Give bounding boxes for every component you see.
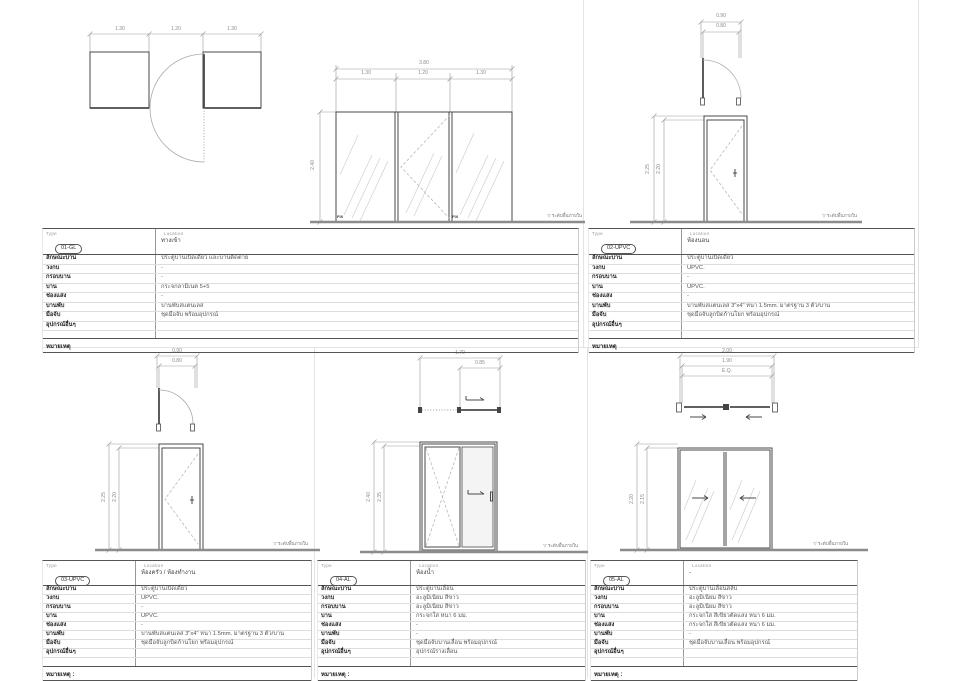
- remark-label: หมายเหตุ: [43, 343, 578, 353]
- location-value: ห้องน้ำ: [416, 568, 585, 576]
- row-value: อะลูมิเนียม สีขาว: [684, 595, 857, 603]
- type-badge: 04-AL: [330, 576, 357, 587]
- schedule-header: Type 05-AL Location -: [591, 561, 857, 586]
- remark-label: หมายเหตุ :: [318, 671, 585, 681]
- row-label: ลักษณะบาน: [318, 586, 411, 594]
- dim-label: 1.90: [721, 359, 733, 364]
- schedule-row: วงกบUPVC.: [43, 595, 311, 604]
- dim-label: 0.80: [171, 359, 183, 364]
- schedule-row: ลักษณะบานประตูบานเปิดเดี่ยว และบานติดตาย: [43, 255, 578, 265]
- glass-wall-elevation: [336, 112, 512, 222]
- schedule-row: อุปกรณ์อื่นๆอุปกรณ์รางเลื่อน: [318, 649, 585, 658]
- schedule-row: มือจับชุดมือจับบานเลื่อน พร้อมอุปกรณ์: [318, 640, 585, 649]
- schedule-row: ช่องแสง-: [589, 293, 914, 303]
- row-value: บานพับสแตนเลส: [156, 303, 578, 312]
- row-label: ช่องแสง: [43, 293, 156, 302]
- type-column-header: Type: [43, 561, 135, 568]
- row-label: มือจับ: [43, 312, 156, 321]
- location-column-header: Location: [689, 561, 857, 568]
- schedule-row: อุปกรณ์อื่นๆ: [589, 322, 914, 332]
- row-label: ลักษณะบาน: [43, 586, 136, 594]
- remark-label: หมายเหตุ :: [591, 671, 857, 681]
- row-label: ช่องแสง: [318, 622, 411, 630]
- level-marker-icon: ▽: [547, 213, 550, 218]
- row-value: กระจกใส หนา 6 มม.: [411, 613, 585, 621]
- type-badge: 01-GL: [55, 244, 82, 255]
- dim-label: 1.20: [170, 27, 182, 32]
- door-swing-arc: [159, 390, 193, 424]
- door-schedule-table-02-upvc: Type 02-UPVC Location ห้องนอน ลักษณะบานป…: [588, 228, 915, 353]
- dim-label: 0.80: [715, 24, 727, 29]
- door-schedule-table-03-upvc: Type 03-UPVC Location ห้องครัว / ห้องทำง…: [42, 560, 312, 681]
- floor-level-label: ▽ ระดับพื้นภายใน: [244, 542, 308, 547]
- schedule-row: บานพับบานพับสแตนเลส 3"x4" หนา 1.5mm. มาต…: [589, 303, 914, 313]
- door-schedule-table-05-al: Type 05-AL Location - ลักษณะบานประตูบานเ…: [590, 560, 858, 681]
- row-label: ลักษณะบาน: [589, 255, 682, 264]
- location-value: ห้องนอน: [687, 236, 914, 244]
- row-value: -: [156, 274, 578, 283]
- slide-direction-arrow: [466, 396, 484, 400]
- floor-level-label: ▽ ระดับพื้นภายใน: [793, 214, 857, 219]
- remark-label: หมายเหตุ :: [43, 671, 311, 681]
- fixed-panel: [425, 447, 460, 547]
- floor-level-label: ▽ ระดับพื้นภายใน: [518, 214, 582, 219]
- schedule-row: อุปกรณ์อื่นๆ: [43, 322, 578, 332]
- level-marker-icon: ▽: [543, 543, 546, 548]
- elevation-drawing-05-al: [620, 430, 868, 558]
- floor-level-text: ระดับพื้นภายใน: [552, 213, 582, 218]
- slide-direction-arrows: [690, 415, 762, 420]
- schedule-row: ช่องแสง-: [43, 293, 578, 303]
- floor-level-text: ระดับพื้นภายใน: [278, 541, 308, 546]
- row-label: วงกบ: [589, 265, 682, 274]
- floor-level-text: ระดับพื้นภายใน: [818, 541, 848, 546]
- schedule-row-blank: [589, 331, 914, 339]
- schedule-row: วงกบอะลูมิเนียม สีขาว: [591, 595, 857, 604]
- door-swing-arc: [150, 54, 204, 162]
- schedule-header: Type 04-AL Location ห้องน้ำ: [318, 561, 585, 586]
- row-value: อะลูมิเนียม สีขาว: [411, 604, 585, 612]
- row-label: อุปกรณ์อื่นๆ: [43, 649, 136, 657]
- row-value: อุปกรณ์รางเลื่อน: [411, 649, 585, 657]
- floor-level-text: ระดับพื้นภายใน: [827, 213, 857, 218]
- row-label: กรอบบาน: [43, 604, 136, 612]
- schedule-row-blank: [591, 658, 857, 667]
- fixed-panel-plan-left: [90, 52, 149, 108]
- schedule-row: ช่องแสง-: [318, 622, 585, 631]
- schedule-row: บานUPVC.: [589, 284, 914, 294]
- door-swing-mark: [401, 115, 450, 219]
- schedule-row: อุปกรณ์อื่นๆ: [43, 649, 311, 658]
- door-swing-mark: [165, 454, 198, 544]
- row-label: วงกบ: [43, 265, 156, 274]
- fix-panel-label: FIX: [452, 215, 458, 219]
- schedule-row: บานพับ-: [591, 631, 857, 640]
- row-label: ช่องแสง: [589, 293, 682, 302]
- dim-label: 0.90: [715, 14, 727, 19]
- schedule-row: บานกระจกใส สีเขียวตัดแสง หนา 6 มม.: [591, 613, 857, 622]
- row-label: กรอบบาน: [318, 604, 411, 612]
- row-label: กรอบบาน: [589, 274, 682, 283]
- schedule-header: Type 02-UPVC Location ห้องนอน: [589, 229, 914, 255]
- sheet: 1.30 1.20 1.30 3.80 1.30 1.20 1.30 2.40 …: [0, 0, 960, 678]
- divider-vertical-top-right: [918, 0, 919, 347]
- plan-drawing-04-al: [400, 350, 520, 426]
- schedule-row: ลักษณะบานประตูบานเปิดเดี่ยว: [589, 255, 914, 265]
- row-label: บาน: [43, 613, 136, 621]
- schedule-row: กรอบบาน-: [43, 274, 578, 284]
- row-value: ชุดมือจับ พร้อมอุปกรณ์: [156, 312, 578, 321]
- type-column-header: Type: [589, 229, 681, 236]
- row-label: บาน: [43, 284, 156, 293]
- schedule-row: บานกระจกลามิเนต 5+5: [43, 284, 578, 294]
- door-frame-elevation: [704, 116, 747, 222]
- dim-label-height: 2.20: [655, 157, 663, 181]
- schedule-row: มือจับชุดมือจับลูกบิดก้านโยก พร้อมอุปกรณ…: [43, 640, 311, 649]
- schedule-row: มือจับชุดมือจับลูกบิดก้านโยก พร้อมอุปกรณ…: [589, 312, 914, 322]
- row-value: ประตูบานเลื่อน: [411, 586, 585, 594]
- location-value: ห้องครัว / ห้องทำงาน: [141, 568, 311, 576]
- elevation-drawing-04-al: [360, 430, 588, 558]
- row-label: มือจับ: [43, 640, 136, 648]
- row-value: กระจกใส สีเขียวตัดแสง หนา 6 มม.: [684, 613, 857, 621]
- level-marker-icon: ▽: [273, 541, 276, 546]
- row-value: [682, 322, 914, 331]
- row-value: บานพับสแตนเลส 3"x4" หนา 1.5mm. มาตรฐาน 3…: [682, 303, 914, 312]
- row-value: กระจกใส สีเขียวตัดแสง หนา 6 มม.: [684, 622, 857, 630]
- plan-drawing-05-al: [660, 348, 810, 426]
- row-value: -: [682, 293, 914, 302]
- location-value: ทางเข้า: [161, 236, 578, 244]
- row-label: บานพับ: [318, 631, 411, 639]
- row-value: ชุดมือจับลูกบิดก้านโยก พร้อมอุปกรณ์: [136, 640, 311, 648]
- dim-label: 1.20: [417, 71, 429, 76]
- dim-label: 1.30: [475, 71, 487, 76]
- fixed-panel-plan-right: [203, 52, 261, 108]
- row-label: วงกบ: [591, 595, 684, 603]
- type-column-header: Type: [318, 561, 410, 568]
- row-value: -: [411, 622, 585, 630]
- schedule-row: บานพับ-: [318, 631, 585, 640]
- row-value: ชุดมือจับลูกบิดก้านโยก พร้อมอุปกรณ์: [682, 312, 914, 321]
- dim-label-height: 2.20: [111, 485, 119, 509]
- row-label: มือจับ: [318, 640, 411, 648]
- dim-label: 0.85: [474, 361, 486, 366]
- row-value: UPVC.: [136, 595, 311, 603]
- schedule-row: บานพับบานพับสแตนเลส: [43, 303, 578, 313]
- schedule-row-blank: [43, 331, 578, 339]
- row-label: วงกบ: [43, 595, 136, 603]
- type-badge: 02-UPVC: [601, 244, 636, 255]
- schedule-row: ช่องแสง-: [43, 622, 311, 631]
- location-value: -: [689, 568, 857, 576]
- row-value: ประตูบานเลื่อนสลับ: [684, 586, 857, 594]
- dim-label: 3.80: [418, 61, 430, 66]
- schedule-row: วงกบ-: [43, 265, 578, 275]
- dim-label-height: 2.40: [309, 153, 317, 177]
- door-handle: [733, 169, 737, 177]
- door-swing-mark: [710, 126, 742, 214]
- row-label: มือจับ: [589, 312, 682, 321]
- row-label: กรอบบาน: [43, 274, 156, 283]
- dim-label-height: 2.35: [376, 485, 384, 509]
- row-label: บานพับ: [591, 631, 684, 639]
- row-value: UPVC.: [682, 284, 914, 293]
- dim-label-height: 2.40: [365, 485, 373, 509]
- row-label: ช่องแสง: [591, 622, 684, 630]
- dim-label: E.Q.: [721, 369, 733, 374]
- row-value: ประตูบานเปิดเดี่ยว และบานติดตาย: [156, 255, 578, 264]
- row-label: กรอบบาน: [591, 604, 684, 612]
- dim-label: 1.30: [114, 27, 126, 32]
- schedule-row-blank: [318, 658, 585, 667]
- row-label: บาน: [591, 613, 684, 621]
- schedule-row: วงกบUPVC.: [589, 265, 914, 275]
- dim-label-height: 2.20: [628, 487, 636, 511]
- row-value: ประตูบานเปิดเดี่ยว: [682, 255, 914, 264]
- row-value: -: [136, 622, 311, 630]
- row-value: อะลูมิเนียม สีขาว: [684, 604, 857, 612]
- schedule-row-blank: [43, 658, 311, 667]
- row-value: บานพับสแตนเลส 3"x4" หนา 1.5mm. มาตรฐาน 3…: [136, 631, 311, 639]
- door-schedule-table-01-gl: Type 01-GL Location ทางเข้า ลักษณะบานประ…: [42, 228, 579, 353]
- row-value: -: [411, 631, 585, 639]
- location-column-header: Location: [161, 229, 578, 236]
- schedule-row: ช่องแสงกระจกใส สีเขียวตัดแสง หนา 6 มม.: [591, 622, 857, 631]
- row-label: อุปกรณ์อื่นๆ: [318, 649, 411, 657]
- row-label: บาน: [318, 613, 411, 621]
- schedule-row: กรอบบาน-: [43, 604, 311, 613]
- row-label: อุปกรณ์อื่นๆ: [591, 649, 684, 657]
- sliding-leaf: [462, 447, 493, 547]
- schedule-row: วงกบอะลูมิเนียม สีขาว: [318, 595, 585, 604]
- schedule-row: มือจับชุดมือจับบานเลื่อน พร้อมอุปกรณ์: [591, 640, 857, 649]
- door-swing-arc: [703, 60, 741, 98]
- row-value: [684, 649, 857, 657]
- remark-label: หมายเหตุ: [589, 343, 914, 353]
- dim-label: 1.30: [360, 71, 372, 76]
- row-value: [136, 649, 311, 657]
- type-badge: 05-AL: [603, 576, 630, 587]
- row-label: บาน: [589, 284, 682, 293]
- row-value: [156, 322, 578, 331]
- row-value: -: [156, 293, 578, 302]
- location-column-header: Location: [687, 229, 914, 236]
- level-marker-icon: ▽: [822, 213, 825, 218]
- row-label: บานพับ: [43, 631, 136, 639]
- row-value: ประตูบานเปิดเดี่ยว: [136, 586, 311, 594]
- dim-label: 1.30: [226, 27, 238, 32]
- row-label: บานพับ: [43, 303, 156, 312]
- row-label: วงกบ: [318, 595, 411, 603]
- row-label: อุปกรณ์อื่นๆ: [589, 322, 682, 331]
- schedule-row: บานUPVC.: [43, 613, 311, 622]
- elevation-drawing-01-gl: [310, 55, 585, 230]
- elevation-drawing-03-upvc: [95, 430, 320, 556]
- row-label: มือจับ: [591, 640, 684, 648]
- door-frame-elevation: [159, 444, 203, 550]
- row-label: อุปกรณ์อื่นๆ: [43, 322, 156, 331]
- schedule-row: กรอบบานอะลูมิเนียม สีขาว: [591, 604, 857, 613]
- door-frame-elevation: [678, 448, 772, 550]
- glass-hatch: [684, 480, 760, 543]
- glass-hatch: [340, 133, 504, 221]
- row-label: บานพับ: [589, 303, 682, 312]
- type-column-header: Type: [43, 229, 155, 236]
- type-badge: 03-UPVC: [55, 576, 90, 587]
- row-value: -: [156, 265, 578, 274]
- schedule-row: มือจับชุดมือจับ พร้อมอุปกรณ์: [43, 312, 578, 322]
- row-label: ลักษณะบาน: [591, 586, 684, 594]
- level-marker-icon: ▽: [813, 541, 816, 546]
- fix-panel-label: FIX: [337, 215, 343, 219]
- row-value: -: [684, 631, 857, 639]
- schedule-row: ลักษณะบานประตูบานเปิดเดี่ยว: [43, 586, 311, 595]
- row-value: อะลูมิเนียม สีขาว: [411, 595, 585, 603]
- dim-label-height: 2.15: [639, 487, 647, 511]
- schedule-row: กรอบบาน-: [589, 274, 914, 284]
- schedule-row: บานพับบานพับสแตนเลส 3"x4" หนา 1.5mm. มาต…: [43, 631, 311, 640]
- location-column-header: Location: [416, 561, 585, 568]
- floor-level-label: ▽ ระดับพื้นภายใน: [784, 542, 848, 547]
- row-value: UPVC.: [136, 613, 311, 621]
- dim-label-height: 2.25: [100, 485, 108, 509]
- type-column-header: Type: [591, 561, 683, 568]
- schedule-header: Type 01-GL Location ทางเข้า: [43, 229, 578, 255]
- row-value: -: [136, 604, 311, 612]
- row-value: UPVC.: [682, 265, 914, 274]
- door-schedule-table-04-al: Type 04-AL Location ห้องน้ำ ลักษณะบานประ…: [317, 560, 586, 681]
- row-label: ลักษณะบาน: [43, 255, 156, 264]
- row-value: ชุดมือจับบานเลื่อน พร้อมอุปกรณ์: [684, 640, 857, 648]
- row-value: ชุดมือจับบานเลื่อน พร้อมอุปกรณ์: [411, 640, 585, 648]
- schedule-row: ลักษณะบานประตูบานเลื่อนสลับ: [591, 586, 857, 595]
- door-handle: [190, 496, 194, 504]
- floor-level-text: ระดับพื้นภายใน: [548, 543, 578, 548]
- schedule-header: Type 03-UPVC Location ห้องครัว / ห้องทำง…: [43, 561, 311, 586]
- elevation-drawing-02-upvc: [630, 106, 880, 230]
- schedule-row: อุปกรณ์อื่นๆ: [591, 649, 857, 658]
- location-column-header: Location: [141, 561, 311, 568]
- schedule-row: บานกระจกใส หนา 6 มม.: [318, 613, 585, 622]
- schedule-row: กรอบบานอะลูมิเนียม สีขาว: [318, 604, 585, 613]
- row-value: กระจกลามิเนต 5+5: [156, 284, 578, 293]
- row-label: ช่องแสง: [43, 622, 136, 630]
- floor-level-label: ▽ ระดับพื้นภายใน: [514, 544, 578, 549]
- row-value: -: [682, 274, 914, 283]
- dim-label-height: 2.25: [644, 157, 652, 181]
- schedule-row: ลักษณะบานประตูบานเลื่อน: [318, 586, 585, 595]
